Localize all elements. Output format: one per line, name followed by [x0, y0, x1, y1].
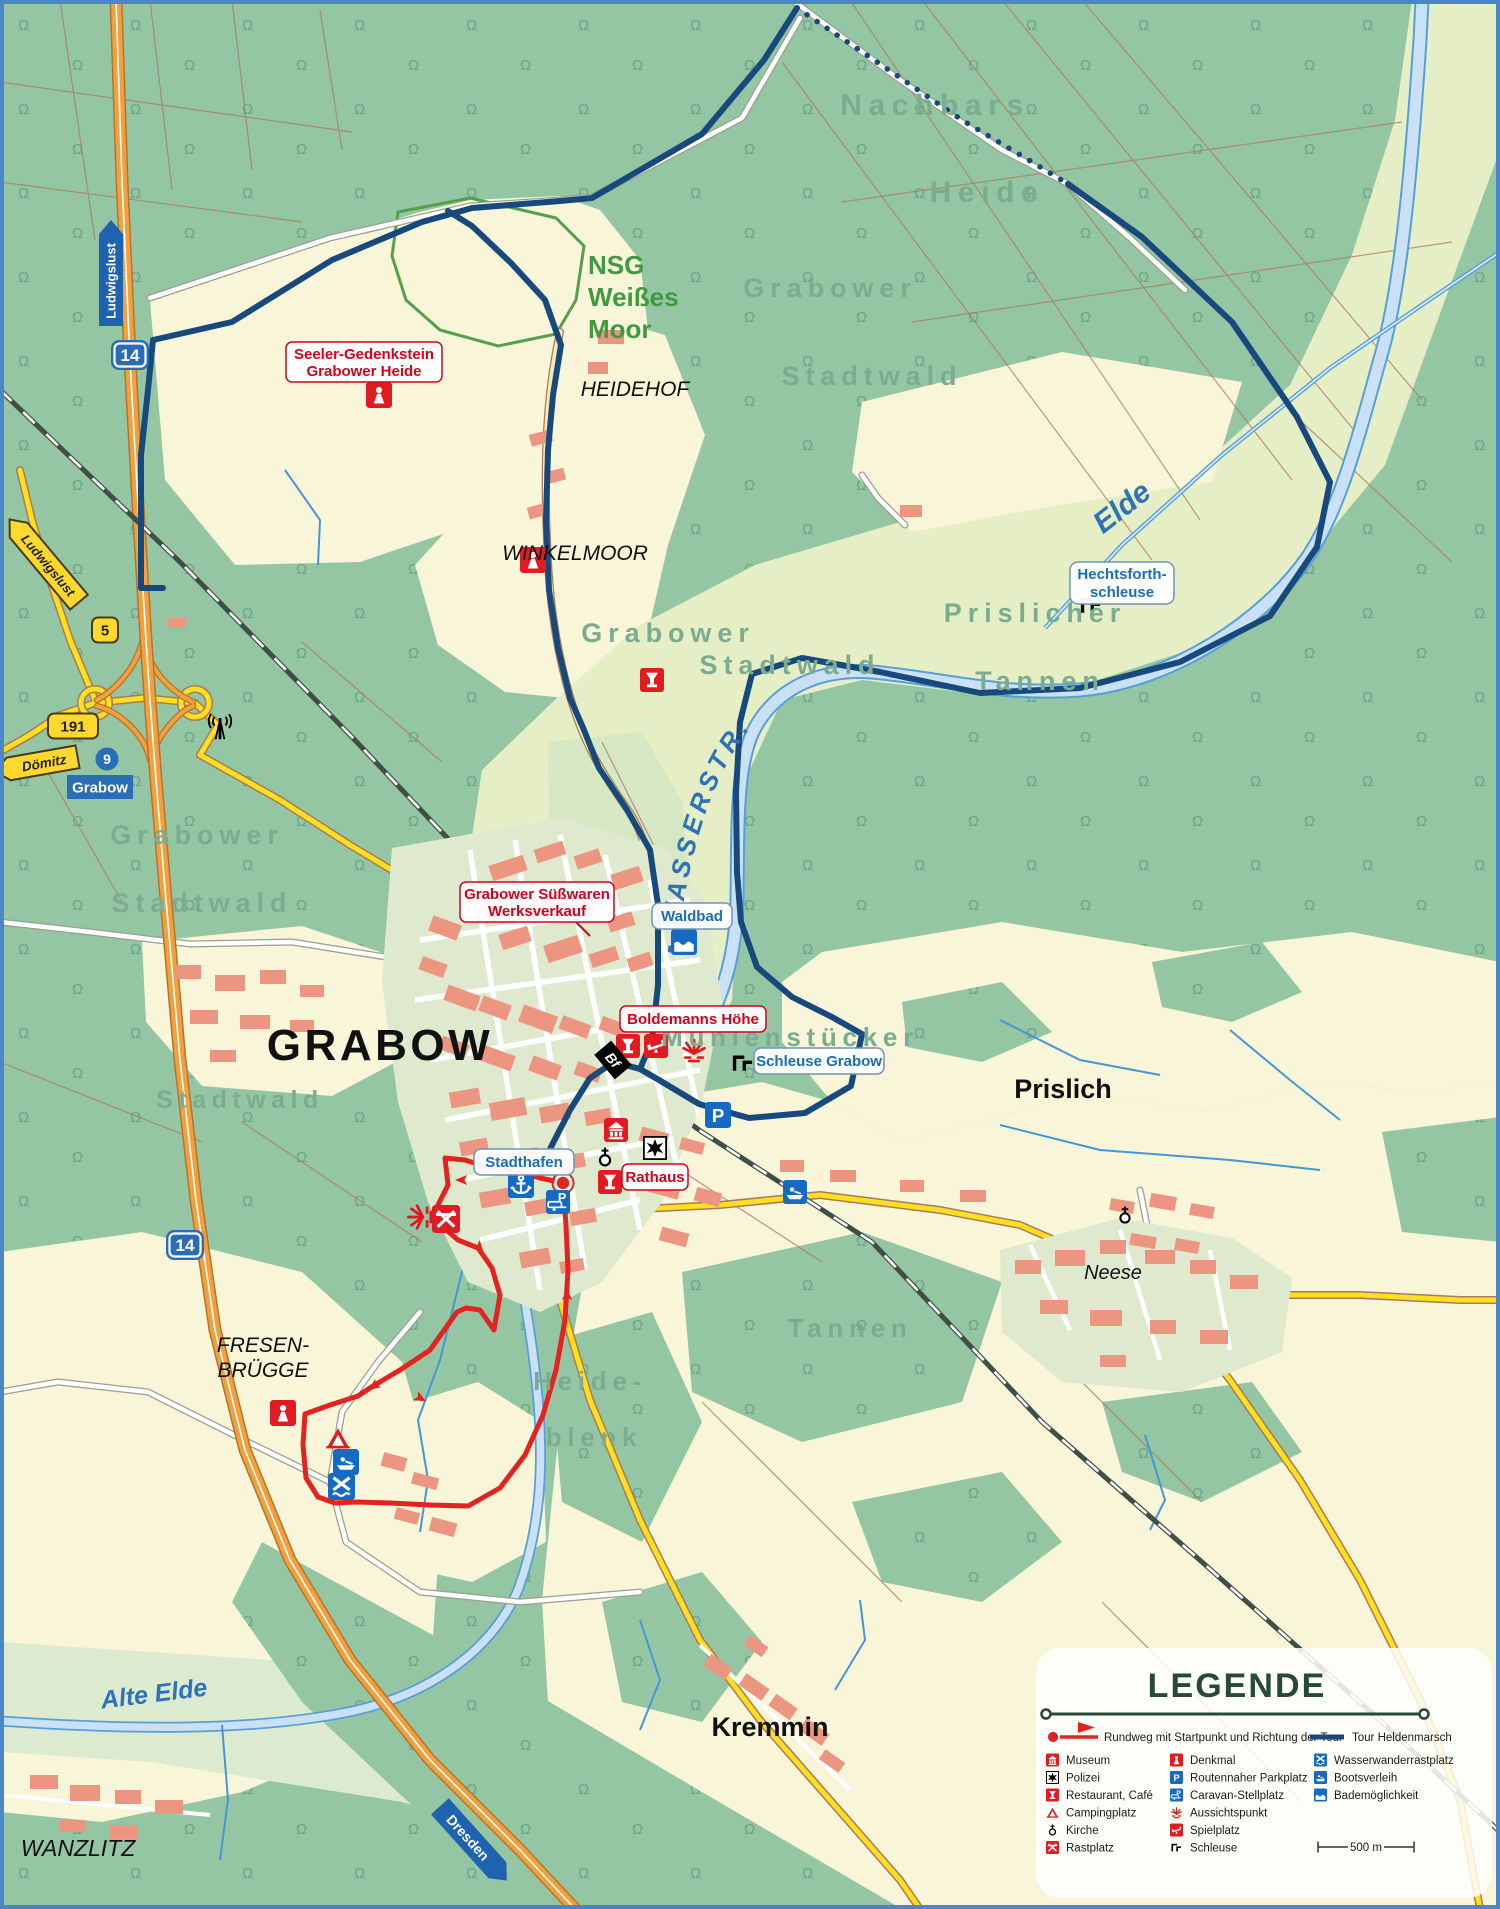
svg-text:14: 14	[121, 346, 140, 365]
svg-text:Caravan-Stellplatz: Caravan-Stellplatz	[1190, 1790, 1284, 1802]
svg-text:Bootsverleih: Bootsverleih	[1334, 1773, 1397, 1785]
restaurant-icon	[598, 1170, 622, 1194]
city-label-grabow: GRABOW	[267, 1021, 493, 1070]
svg-text:Werksverkauf: Werksverkauf	[488, 903, 587, 920]
svg-text:Grabower Heide: Grabower Heide	[306, 363, 421, 380]
poi-seeler-gedenkstein: Seeler-GedenksteinGrabower Heide	[286, 342, 442, 382]
svg-text:Campingplatz: Campingplatz	[1066, 1808, 1137, 1820]
svg-text:Bademöglichkeit: Bademöglichkeit	[1334, 1790, 1419, 1802]
exit-9-badge: 9	[96, 748, 119, 771]
poi-boldemanns: Boldemanns Höhe	[620, 1006, 766, 1032]
museum-icon	[604, 1118, 628, 1142]
place-label: FRESEN-	[217, 1334, 309, 1357]
road-b5-badge: 5	[92, 618, 118, 643]
nsg-label: Moor	[588, 314, 652, 344]
poi-waldbad: Waldbad	[652, 903, 732, 929]
police-icon	[644, 1137, 666, 1159]
svg-text:Ludwigslust: Ludwigslust	[104, 242, 119, 319]
forest-label: Tannen	[975, 666, 1105, 696]
legend-title: LEGENDE	[1148, 1667, 1327, 1705]
svg-text:Denkmal: Denkmal	[1190, 1755, 1235, 1767]
svg-text:Stadthafen: Stadthafen	[485, 1154, 563, 1171]
svg-text:Schleuse Grabow: Schleuse Grabow	[756, 1053, 882, 1070]
scale-label: 500 m	[1350, 1842, 1382, 1854]
forest-label: Grabower	[581, 618, 755, 648]
svg-text:Hechtsforth-: Hechtsforth-	[1077, 566, 1166, 583]
svg-text:Boldemanns Höhe: Boldemanns Höhe	[627, 1011, 759, 1028]
place-label: BRÜGGE	[217, 1359, 309, 1382]
monument-icon	[270, 1400, 296, 1426]
motorway-14-shield: 14	[166, 1230, 204, 1260]
poi-rathaus: Rathaus	[622, 1164, 688, 1190]
place-label: HEIDEHOF	[581, 378, 691, 401]
rest-area-icon	[432, 1205, 460, 1233]
boat-rental-icon	[333, 1449, 359, 1475]
map-page: Ω Ω P P	[0, 0, 1500, 1909]
svg-text:Kirche: Kirche	[1066, 1825, 1099, 1837]
svg-text:Rathaus: Rathaus	[625, 1169, 684, 1186]
ludwigslust-motorway-arrow: Ludwigslust	[99, 220, 123, 326]
svg-text:Routennaher Parkplatz: Routennaher Parkplatz	[1190, 1773, 1308, 1785]
exit-grabow-sign: Grabow	[67, 775, 133, 799]
road-191-badge: 191	[48, 714, 98, 739]
svg-text:9: 9	[103, 751, 111, 767]
legend: LEGENDE Rundweg mit Startpunkt und Richt…	[1036, 1648, 1492, 1898]
forest-label: Stadtwald	[112, 888, 293, 918]
forest-label: Stadtwald	[700, 650, 881, 680]
poi-hechtsforth: Hechtsforth-schleuse	[1070, 562, 1174, 604]
nsg-label: Weißes	[588, 282, 679, 312]
forest-label: Grabower	[110, 820, 284, 850]
svg-text:Seeler-Gedenkstein: Seeler-Gedenkstein	[294, 346, 434, 363]
svg-text:Tour Heldenmarsch: Tour Heldenmarsch	[1352, 1732, 1452, 1744]
svg-text:Spielplatz: Spielplatz	[1190, 1825, 1240, 1837]
svg-text:Polizei: Polizei	[1066, 1773, 1100, 1785]
motorway-14-shield: 14	[111, 340, 149, 370]
svg-text:Grabower Süßwaren: Grabower Süßwaren	[464, 886, 610, 903]
svg-text:Rundweg mit Startpunkt und Ric: Rundweg mit Startpunkt und Richtung der …	[1104, 1732, 1343, 1744]
svg-text:schleuse: schleuse	[1090, 584, 1154, 601]
place-label: WINKELMOOR	[502, 542, 648, 565]
map-canvas: Ω Ω P P	[0, 0, 1500, 1909]
monument-icon	[366, 382, 392, 408]
forest-label: Heide-	[533, 1366, 647, 1396]
restaurant-icon	[640, 668, 664, 692]
place-label: WANZLITZ	[21, 1835, 137, 1861]
poi-schleuse-grabow: Schleuse Grabow	[754, 1048, 884, 1074]
svg-text:Rastplatz: Rastplatz	[1066, 1843, 1114, 1855]
svg-text:Museum: Museum	[1066, 1755, 1110, 1767]
poi-stadthafen: Stadthafen	[474, 1149, 574, 1175]
forest-label: Heide	[930, 176, 1045, 209]
harbor-anchor-icon	[508, 1172, 534, 1198]
svg-text:Waldbad: Waldbad	[661, 908, 723, 925]
forest-label: blenk	[546, 1422, 643, 1452]
place-label: Prislich	[1014, 1074, 1112, 1104]
svg-text:Restaurant, Café: Restaurant, Café	[1066, 1790, 1153, 1802]
svg-text:14: 14	[176, 1236, 195, 1255]
forest-label: Tannen	[788, 1313, 913, 1343]
forest-label: Nachbars	[840, 89, 1030, 122]
canoe-rest-icon	[328, 1473, 355, 1500]
forest-label: Stadtwald	[156, 1086, 324, 1114]
place-label: Kremmin	[711, 1712, 828, 1742]
forest-label: Grabower	[743, 273, 917, 303]
svg-text:Grabow: Grabow	[72, 780, 128, 797]
boat-rental-icon	[783, 1180, 807, 1204]
svg-text:5: 5	[101, 623, 109, 640]
svg-text:Wasserwanderrastplatz: Wasserwanderrastplatz	[1334, 1755, 1454, 1767]
caravan-site-icon	[546, 1190, 570, 1214]
svg-text:Schleuse: Schleuse	[1190, 1843, 1237, 1855]
parking-icon	[705, 1102, 731, 1128]
svg-text:191: 191	[60, 719, 85, 736]
place-label: Neese	[1084, 1262, 1142, 1284]
svg-text:Aussichtspunkt: Aussichtspunkt	[1190, 1808, 1268, 1820]
forest-label: Stadtwald	[782, 361, 963, 391]
nsg-label: NSG	[588, 250, 644, 280]
